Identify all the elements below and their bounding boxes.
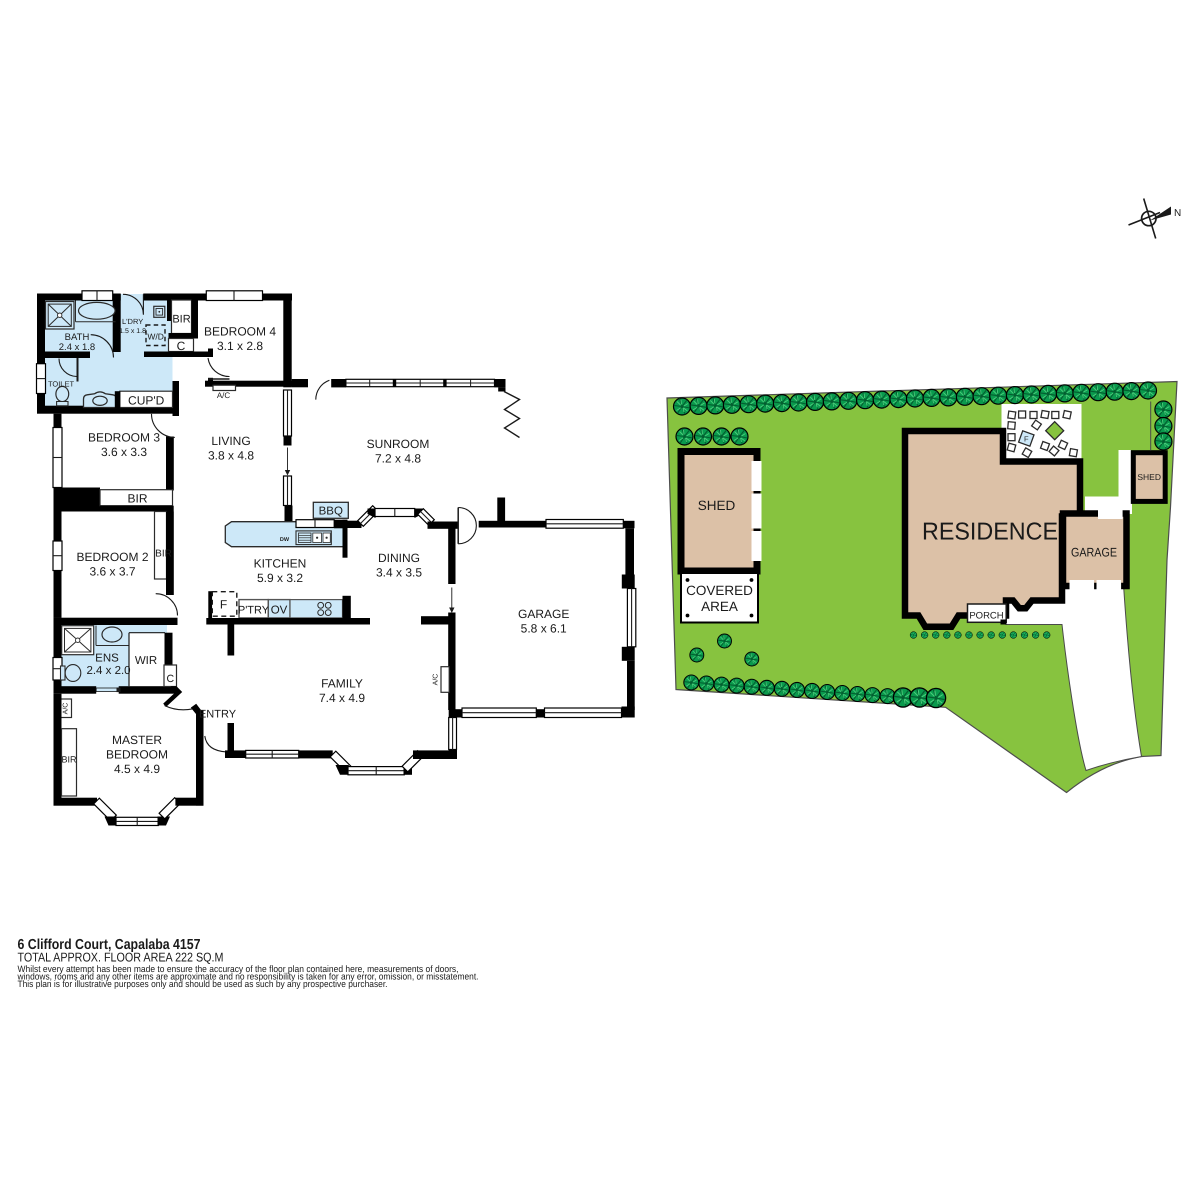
svg-text:OV: OV <box>271 605 288 617</box>
svg-text:COVERED: COVERED <box>686 583 753 598</box>
svg-text:A/C: A/C <box>432 674 440 686</box>
svg-text:3.1 x 2.8: 3.1 x 2.8 <box>217 339 263 353</box>
svg-text:SUNROOM: SUNROOM <box>367 437 430 451</box>
svg-text:3.6 x 3.3: 3.6 x 3.3 <box>101 445 147 459</box>
svg-text:3.4 x 3.5: 3.4 x 3.5 <box>376 566 422 580</box>
svg-text:4.5 x 4.9: 4.5 x 4.9 <box>114 762 160 776</box>
svg-text:BIR: BIR <box>155 549 172 560</box>
svg-text:5.9 x 3.2: 5.9 x 3.2 <box>257 571 303 585</box>
svg-text:A/C: A/C <box>62 703 70 715</box>
svg-text:SHED: SHED <box>698 498 736 513</box>
svg-text:This plan is for illustrative: This plan is for illustrative purposes o… <box>18 979 388 989</box>
svg-text:BEDROOM 4: BEDROOM 4 <box>204 325 276 339</box>
svg-text:A/C: A/C <box>217 391 231 400</box>
svg-text:GARAGE: GARAGE <box>518 607 569 621</box>
svg-text:KITCHEN: KITCHEN <box>254 557 307 571</box>
svg-text:LIVING: LIVING <box>211 434 250 448</box>
svg-text:BIR: BIR <box>127 492 147 506</box>
svg-text:DINING: DINING <box>378 551 420 565</box>
svg-text:WIR: WIR <box>135 655 157 667</box>
svg-text:AREA: AREA <box>701 599 738 614</box>
svg-text:P'TRY: P'TRY <box>238 605 270 617</box>
svg-text:BEDROOM: BEDROOM <box>106 748 168 762</box>
svg-text:L'DRY: L'DRY <box>122 317 143 326</box>
svg-text:SHED: SHED <box>1137 472 1161 482</box>
svg-text:BEDROOM 2: BEDROOM 2 <box>76 550 148 564</box>
svg-text:2.4 x 2.0: 2.4 x 2.0 <box>86 665 130 677</box>
svg-text:DW: DW <box>280 537 290 543</box>
svg-text:5.8 x 6.1: 5.8 x 6.1 <box>521 622 567 636</box>
svg-text:3.6 x 3.7: 3.6 x 3.7 <box>89 565 135 579</box>
svg-text:CUP'D: CUP'D <box>128 394 165 408</box>
svg-text:BIR: BIR <box>172 314 190 326</box>
svg-text:BIR: BIR <box>61 755 77 765</box>
svg-text:2.4 x 1.8: 2.4 x 1.8 <box>59 342 95 353</box>
svg-text:F: F <box>220 598 227 612</box>
svg-text:W/D: W/D <box>147 332 164 342</box>
svg-text:7.4 x 4.9: 7.4 x 4.9 <box>319 691 365 705</box>
svg-text:3.8 x 4.8: 3.8 x 4.8 <box>208 449 254 463</box>
svg-text:1.5 x 1.8: 1.5 x 1.8 <box>119 328 146 335</box>
svg-text:C: C <box>167 673 175 685</box>
svg-text:TOILET: TOILET <box>48 380 75 389</box>
svg-text:F: F <box>1024 435 1029 444</box>
svg-text:BBQ: BBQ <box>319 506 343 518</box>
svg-text:RESIDENCE: RESIDENCE <box>922 519 1058 546</box>
svg-text:ENTRY: ENTRY <box>199 709 237 721</box>
svg-text:C: C <box>177 339 186 353</box>
svg-text:FAMILY: FAMILY <box>321 677 363 691</box>
svg-text:GARAGE: GARAGE <box>1071 546 1117 560</box>
svg-text:PORCH: PORCH <box>969 611 1003 622</box>
svg-text:N: N <box>1174 208 1181 219</box>
svg-text:MASTER: MASTER <box>112 733 162 747</box>
svg-text:BEDROOM 3: BEDROOM 3 <box>88 431 160 445</box>
svg-text:7.2 x 4.8: 7.2 x 4.8 <box>375 452 421 466</box>
svg-text:ENS: ENS <box>95 653 119 665</box>
svg-text:TOTAL APPROX. FLOOR AREA 222 S: TOTAL APPROX. FLOOR AREA 222 SQ.M <box>18 950 224 965</box>
